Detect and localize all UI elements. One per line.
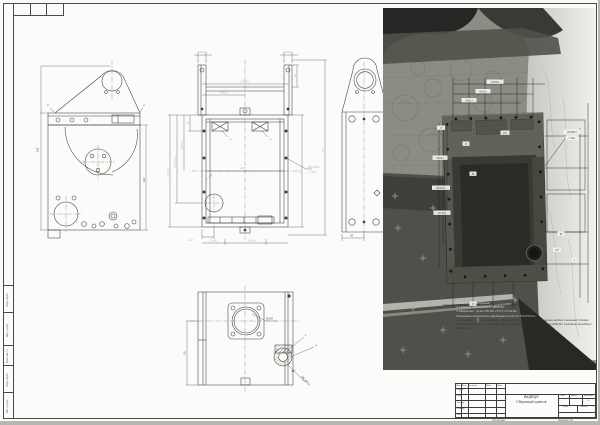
drawing-sheet-screenshot: { "frame": { "kopiroval": "Копировал", "… bbox=[0, 0, 600, 425]
dim-label: 4 bbox=[315, 343, 317, 347]
chip-label: Ø6,3Н12 bbox=[566, 131, 577, 134]
dim-label: 2 bbox=[47, 103, 49, 107]
doc-type: Сборочный чертеж bbox=[505, 400, 558, 404]
dim-label: 44,5 bbox=[188, 238, 194, 243]
chip-label: 89,5±0,2 bbox=[436, 187, 446, 190]
dim-label: 90 bbox=[183, 351, 187, 355]
dim-label: 20±0,1 bbox=[198, 50, 207, 55]
dim-label: 120±0,1 bbox=[240, 80, 251, 85]
dim-label: 2 bbox=[143, 103, 145, 107]
dim-label: 42 bbox=[269, 137, 273, 141]
tb-role: Пров. bbox=[457, 395, 462, 397]
dim-label: 42 bbox=[229, 137, 233, 141]
dim-label: 2 bbox=[206, 177, 208, 181]
tb-scale-label: Масштаб bbox=[584, 395, 593, 397]
tb-role: Утв. bbox=[457, 414, 462, 416]
dim-label: 160 bbox=[142, 177, 146, 182]
front-view bbox=[40, 60, 148, 238]
tb-header-izm: Изм. bbox=[456, 385, 460, 387]
format-label: Формат A3 bbox=[558, 418, 573, 422]
dim-label: 63±0,1 bbox=[220, 91, 229, 96]
tb-role: Разраб. bbox=[457, 389, 464, 391]
top-left-stamp-box bbox=[13, 3, 64, 16]
dim-label: 27 bbox=[186, 121, 190, 125]
dim-label: 245 bbox=[36, 147, 40, 152]
chip-label: 7 отв. bbox=[569, 137, 576, 140]
tb-header-data: Дата bbox=[497, 385, 502, 387]
dim-label: 35 bbox=[350, 234, 354, 238]
tb-header-podp: Подп. bbox=[486, 385, 491, 387]
dim-label: 23±0,2 bbox=[210, 239, 219, 244]
dim-label: 66±0,2 bbox=[248, 239, 257, 244]
sheet-frame-left-margin bbox=[13, 3, 14, 418]
technical-notes: 1. *Размеры для справок. 2. Сварные швы … bbox=[456, 301, 596, 331]
tb-role: Н.контр. bbox=[457, 408, 465, 410]
dim-label: 111±0,2 bbox=[166, 168, 171, 178]
dim-label: 36 bbox=[293, 74, 297, 78]
tb-header-dokum: № докум. bbox=[469, 385, 478, 387]
dim-label: Ø105 bbox=[265, 317, 273, 321]
title-block: Изм. Лист № докум. Подп. Дата Разраб. Пр… bbox=[455, 383, 596, 418]
metal-part bbox=[443, 113, 547, 284]
chip-label: 120±0,1 bbox=[491, 81, 500, 84]
tb-mass-label: Масса bbox=[571, 395, 577, 397]
dim-label: 20±0,1 bbox=[284, 50, 293, 55]
dim-label: 45° bbox=[291, 369, 296, 373]
dim-label: 89,5±0,2 bbox=[173, 156, 178, 167]
margin-cell: Подп. и дата bbox=[3, 285, 13, 313]
tb-sheets-label: Листов bbox=[580, 406, 587, 408]
dim-label: 110 bbox=[240, 166, 245, 170]
tb-sheet-label: Лист bbox=[563, 406, 568, 408]
chip-label: 20±0,1 bbox=[465, 99, 473, 102]
dim-label: 112 bbox=[298, 169, 302, 174]
tb-sheets-value: 1 bbox=[593, 406, 594, 408]
tb-role: Т.контр. bbox=[457, 402, 465, 404]
margin-cell: Инв. № подл. bbox=[3, 392, 13, 419]
tb-scale-value: 1:2 bbox=[587, 400, 590, 402]
kopiroval-label: Копировал bbox=[492, 418, 505, 422]
dim-label: 1 bbox=[305, 333, 307, 337]
chip-label: 111±0,2 bbox=[438, 212, 447, 215]
dim-label: Ø6,3Н12 bbox=[299, 374, 311, 387]
tb-lit-label: Лит. bbox=[561, 395, 566, 397]
chip-label: 45° bbox=[555, 249, 559, 252]
note-line: 5. Клей 88-Н ОСТ 6-15-2785-83. Грибки вы… bbox=[456, 322, 596, 330]
dim-label: 7 отв. bbox=[309, 170, 317, 174]
chip-label: 50±0,2 bbox=[436, 157, 444, 160]
chip-label: 63±0,1 bbox=[479, 90, 487, 93]
bottom-view bbox=[186, 286, 314, 392]
tb-name-cell: Корпус Сборочный чертеж bbox=[505, 395, 558, 404]
dim-label: 50±0,2 bbox=[180, 140, 185, 149]
tb-header-list: Лист bbox=[462, 385, 467, 387]
dim-label: 177 bbox=[321, 147, 325, 152]
